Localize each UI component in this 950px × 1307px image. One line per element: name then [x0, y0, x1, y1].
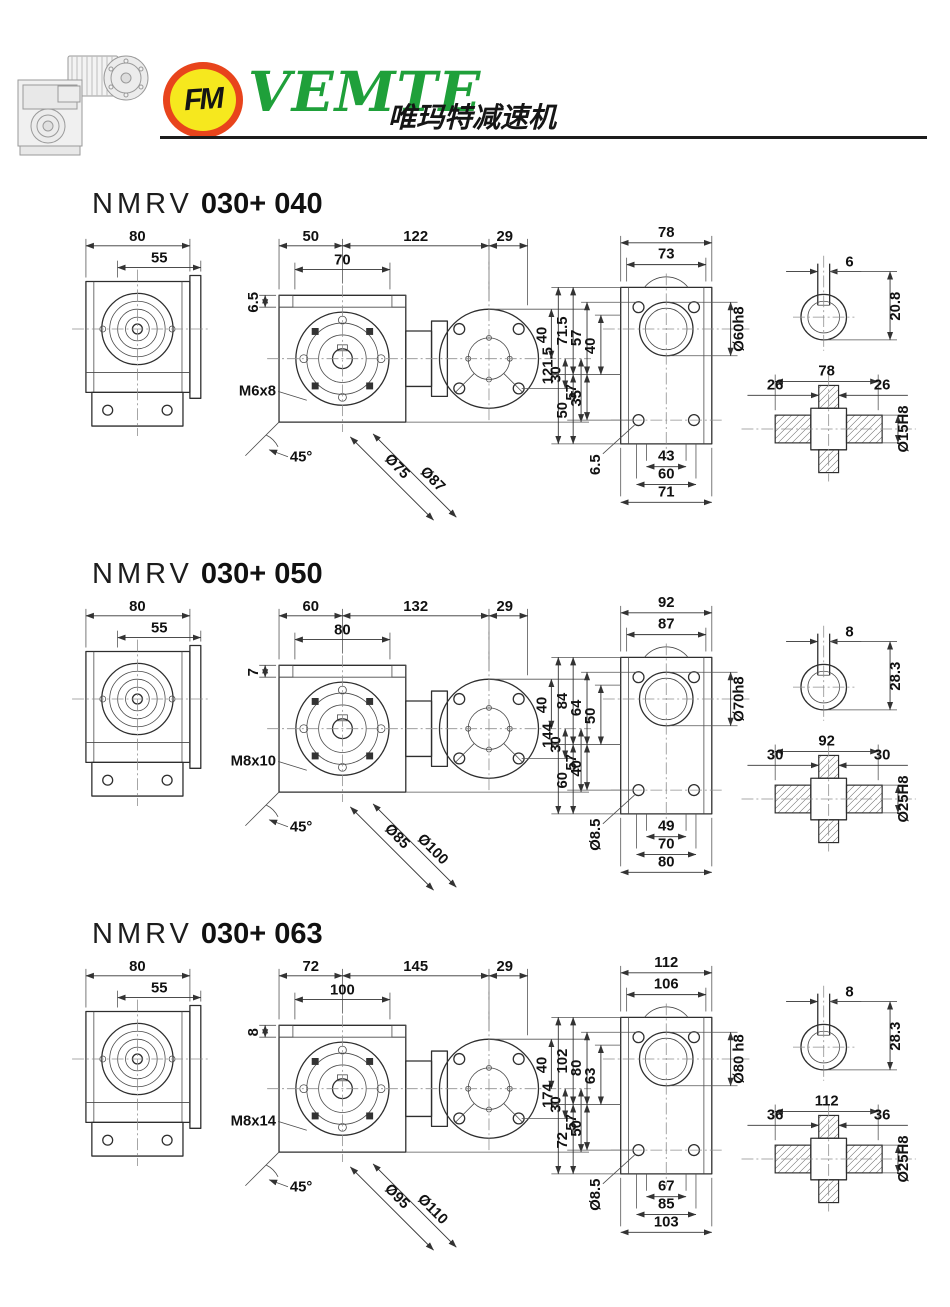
logo-monogram: FM	[183, 82, 223, 119]
dim-flange-d2: Ø100	[414, 831, 451, 868]
flange-view-drawing: 78 73 Ø60h8 121.5 71.5 57 40 50 35 6.5 4…	[540, 226, 749, 502]
dim-left-5: 35	[569, 390, 585, 407]
dim-key-height: 20.8	[888, 292, 904, 321]
dim-shaft-end-left: 30	[767, 747, 784, 763]
label-shaft-dia: Ø25H8	[896, 1135, 912, 1182]
dim-flange-d1: Ø95	[381, 1181, 412, 1212]
front-view-drawing: 7 60 132 29 80 M8x10 45° Ø85 Ø100 40 30 …	[231, 599, 591, 890]
dim-bottom-2: 71	[658, 484, 675, 500]
dim-front-h-top: 40	[534, 327, 550, 344]
dim-bottom-1: 70	[658, 837, 675, 853]
dim-front-b: 132	[403, 599, 428, 615]
dim-key-height: 28.3	[888, 662, 904, 691]
dim-left-5: 40	[569, 760, 585, 777]
dim-front-a-inner: 100	[330, 983, 355, 999]
dim-front-step: 7	[246, 668, 262, 676]
dim-left-3: 63	[583, 1068, 599, 1085]
dim-left-0: 174	[540, 1083, 556, 1109]
dim-bottom-2: 103	[654, 1214, 679, 1230]
dim-flange-width: 92	[658, 596, 675, 611]
label-output-bore: Ø70h8	[731, 676, 747, 721]
dim-left-6: Ø8.5	[588, 1179, 604, 1211]
dim-flange-width: 78	[658, 226, 675, 241]
dim-front-step: 8	[246, 1028, 262, 1036]
label-output-bore: Ø60h8	[731, 306, 747, 351]
dim-shaft-end-right: 26	[874, 377, 891, 393]
label-tap-size: M6x8	[239, 383, 276, 399]
dim-side-hub: 55	[151, 981, 168, 997]
dim-flange-width-inner: 106	[654, 977, 679, 993]
dim-bottom-2: 80	[658, 854, 675, 870]
dim-left-5: 50	[569, 1120, 585, 1137]
dim-bottom-0: 49	[658, 819, 675, 835]
dim-left-6: 6.5	[588, 454, 604, 475]
dim-shaft-length: 112	[815, 1094, 839, 1110]
shaft-view-drawing: 6 20.8 78 26 26 Ø15H8	[742, 255, 916, 482]
dim-front-h-top: 40	[534, 1057, 550, 1074]
dim-key-width: 6	[845, 255, 853, 271]
dim-front-b: 145	[403, 959, 428, 975]
label-tap-size: M8x10	[231, 753, 276, 769]
dim-bottom-0: 67	[658, 1179, 675, 1195]
label-output-bore: Ø80 h8	[731, 1034, 747, 1084]
dim-front-a: 50	[302, 229, 319, 245]
dim-flange-width-inner: 87	[658, 617, 675, 633]
dim-front-a: 72	[302, 959, 319, 975]
dim-flange-d1: Ø85	[381, 821, 412, 852]
dim-side-hub: 55	[151, 621, 168, 637]
dim-flange-d1: Ø75	[381, 451, 412, 482]
flange-view-drawing: 92 87 Ø70h8 144 84 64 50 60 40 Ø8.5 49 7…	[540, 596, 749, 872]
dim-angle: 45°	[290, 1180, 313, 1196]
model-number: 030+ 063	[201, 918, 323, 950]
dim-key-width: 8	[845, 625, 853, 641]
dim-angle: 45°	[290, 820, 313, 836]
shaft-view-drawing: 8 28.3 112 36 36 Ø25H8	[742, 985, 916, 1212]
dim-shaft-end-left: 36	[767, 1107, 784, 1123]
dim-shaft-length: 92	[818, 734, 835, 750]
section-title: NMRV030+ 050	[92, 558, 323, 591]
dim-left-0: 121.5	[540, 347, 556, 384]
dim-side-overall: 80	[129, 229, 146, 245]
dim-bottom-0: 43	[658, 449, 675, 465]
page-header: FM VEMTE 唯玛特减速机	[0, 0, 950, 180]
dim-shaft-length: 78	[818, 364, 835, 380]
front-view-drawing: 6.5 50 122 29 70 M6x8 45° Ø75 Ø87 40 30 …	[239, 229, 591, 520]
header-divider	[160, 136, 927, 139]
shaft-view-drawing: 8 28.3 92 30 30 Ø25H8	[742, 625, 916, 852]
dim-shaft-end-right: 30	[874, 747, 891, 763]
section-title: NMRV030+ 040	[92, 188, 323, 221]
model-prefix: NMRV	[92, 188, 193, 220]
dim-front-h-top: 40	[534, 697, 550, 714]
dim-side-overall: 80	[129, 959, 146, 975]
dim-flange-width-inner: 73	[658, 247, 675, 263]
label-shaft-dia: Ø25H8	[896, 775, 912, 822]
dim-left-0: 144	[540, 723, 556, 749]
dim-flange-d2: Ø87	[417, 464, 448, 495]
dim-shaft-end-right: 36	[874, 1107, 891, 1123]
dim-key-height: 28.3	[888, 1022, 904, 1051]
dim-front-a-inner: 80	[334, 623, 351, 639]
dim-front-b: 122	[403, 229, 428, 245]
dim-angle: 45°	[290, 450, 313, 466]
dim-flange-width: 112	[654, 956, 678, 971]
dim-front-c: 29	[497, 959, 514, 975]
dim-front-c: 29	[497, 229, 514, 245]
model-prefix: NMRV	[92, 558, 193, 590]
section-title: NMRV030+ 063	[92, 918, 323, 951]
label-tap-size: M8x14	[231, 1113, 277, 1129]
brand-logo-icon: FM	[163, 62, 243, 138]
side-view-drawing: 80 55	[72, 229, 209, 436]
product-photo	[14, 50, 154, 168]
dim-flange-d2: Ø110	[414, 1191, 450, 1227]
brand-name-chinese: 唯玛特减速机	[388, 96, 556, 136]
dimension-drawing: 80 55	[56, 956, 918, 1263]
front-view-drawing: 8 72 145 29 100 M8x14 45° Ø95 Ø110 40 30…	[231, 959, 591, 1250]
dim-side-hub: 55	[151, 251, 168, 267]
dim-front-a: 60	[302, 599, 319, 615]
side-view-drawing: 80 55	[72, 959, 209, 1166]
side-view-drawing: 80 55	[72, 599, 209, 806]
dim-key-width: 8	[845, 985, 853, 1001]
dim-shaft-end-left: 26	[767, 377, 784, 393]
dim-front-a-inner: 70	[334, 253, 351, 269]
dim-bottom-1: 85	[658, 1197, 675, 1213]
dim-left-6: Ø8.5	[588, 819, 604, 851]
flange-view-drawing: 112 106 Ø80 h8 174 102 80 63 72 50 Ø8.5 …	[540, 956, 749, 1232]
dimension-drawing: 80 55	[56, 596, 918, 903]
dim-left-3: 40	[583, 338, 599, 355]
dim-side-overall: 80	[129, 599, 146, 615]
model-prefix: NMRV	[92, 918, 193, 950]
model-section: NMRV030+ 040	[0, 188, 950, 533]
model-number: 030+ 050	[201, 558, 323, 590]
dimension-drawing: 80 55	[56, 226, 918, 533]
dim-left-3: 50	[583, 708, 599, 725]
dim-front-c: 29	[497, 599, 514, 615]
model-section: NMRV030+ 063	[0, 918, 950, 1263]
model-section: NMRV030+ 050	[0, 558, 950, 903]
dim-front-step: 6.5	[246, 292, 262, 313]
label-shaft-dia: Ø15H8	[896, 405, 912, 452]
model-number: 030+ 040	[201, 188, 323, 220]
dim-bottom-1: 60	[658, 467, 675, 483]
